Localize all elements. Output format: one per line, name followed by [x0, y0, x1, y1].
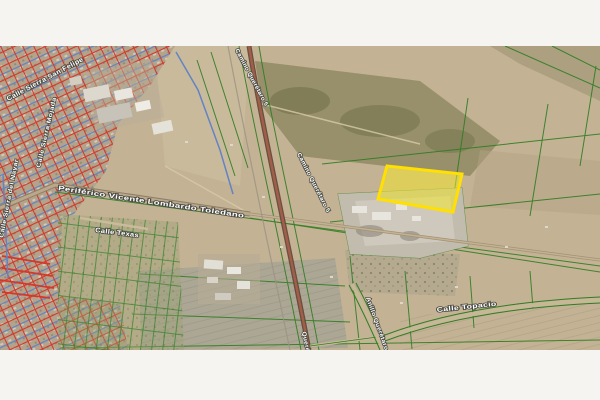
page-margin-top: [0, 0, 600, 46]
page-margin-bottom: [0, 350, 600, 400]
satellite-map-image[interactable]: Calle Sierra San Felipe Calle Sierra Moj…: [0, 46, 600, 350]
warehouse-buildings: [198, 254, 260, 304]
